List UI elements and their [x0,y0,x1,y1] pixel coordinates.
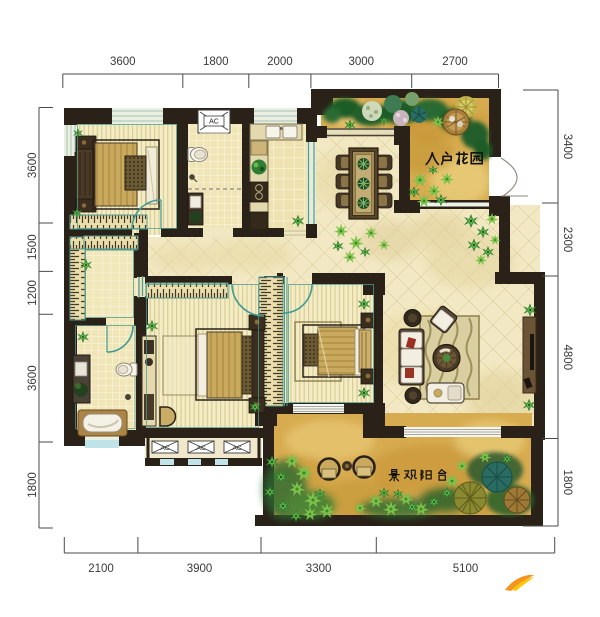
svg-text:1800: 1800 [203,56,229,68]
svg-text:3900: 3900 [187,563,213,575]
svg-text:5100: 5100 [453,563,479,575]
svg-text:3000: 3000 [349,56,375,68]
svg-text:2300: 2300 [561,227,573,253]
svg-text:2700: 2700 [442,56,468,68]
svg-text:3600: 3600 [27,153,39,179]
svg-text:3600: 3600 [27,365,39,391]
svg-text:AC: AC [160,445,169,452]
svg-text:3600: 3600 [110,56,136,68]
svg-text:3300: 3300 [306,563,332,575]
svg-text:4800: 4800 [561,345,573,371]
svg-text:AC: AC [232,445,241,452]
svg-text:2000: 2000 [267,56,293,68]
svg-text:1800: 1800 [561,470,573,496]
svg-text:AC: AC [209,119,219,126]
svg-text:1200: 1200 [27,280,39,306]
svg-text:2100: 2100 [88,563,114,575]
svg-text:AC: AC [196,445,205,452]
svg-text:1500: 1500 [27,234,39,260]
svg-text:3400: 3400 [561,134,573,160]
svg-text:1800: 1800 [27,472,39,498]
